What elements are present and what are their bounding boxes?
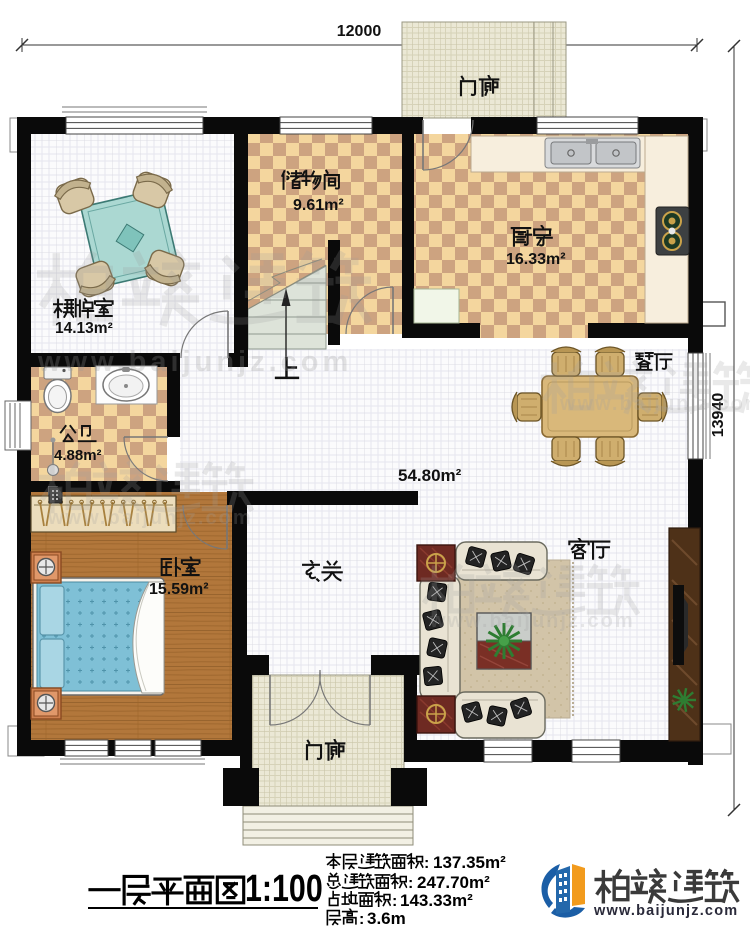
svg-text:15.59m²: 15.59m² [149,581,209,598]
svg-text::: : [424,855,429,872]
svg-text::: : [359,911,364,928]
svg-text:1:100: 1:100 [245,868,323,910]
svg-text:www.baijunjz.com: www.baijunjz.com [37,346,352,378]
svg-text:54.80m²: 54.80m² [398,466,462,485]
svg-text:137.35m²: 137.35m² [433,853,506,872]
svg-text:4.88m²: 4.88m² [54,447,102,464]
svg-text:www.baijunjz.com: www.baijunjz.com [429,610,635,632]
svg-text:12000: 12000 [337,23,382,40]
svg-text::: : [392,893,397,910]
svg-text:16.33m²: 16.33m² [506,251,566,268]
svg-text:143.33m²: 143.33m² [400,891,473,910]
svg-text:14.13m²: 14.13m² [55,320,113,337]
svg-text:247.70m²: 247.70m² [417,873,490,892]
svg-text:3.6m: 3.6m [367,909,406,928]
svg-text:www.baijunjz.com: www.baijunjz.com [593,903,738,919]
svg-text:9.61m²: 9.61m² [293,197,344,214]
svg-text::: : [408,875,413,892]
svg-text:www.baijunjz.com: www.baijunjz.com [559,393,750,415]
svg-text:www.baijunjz.com: www.baijunjz.com [47,507,253,529]
